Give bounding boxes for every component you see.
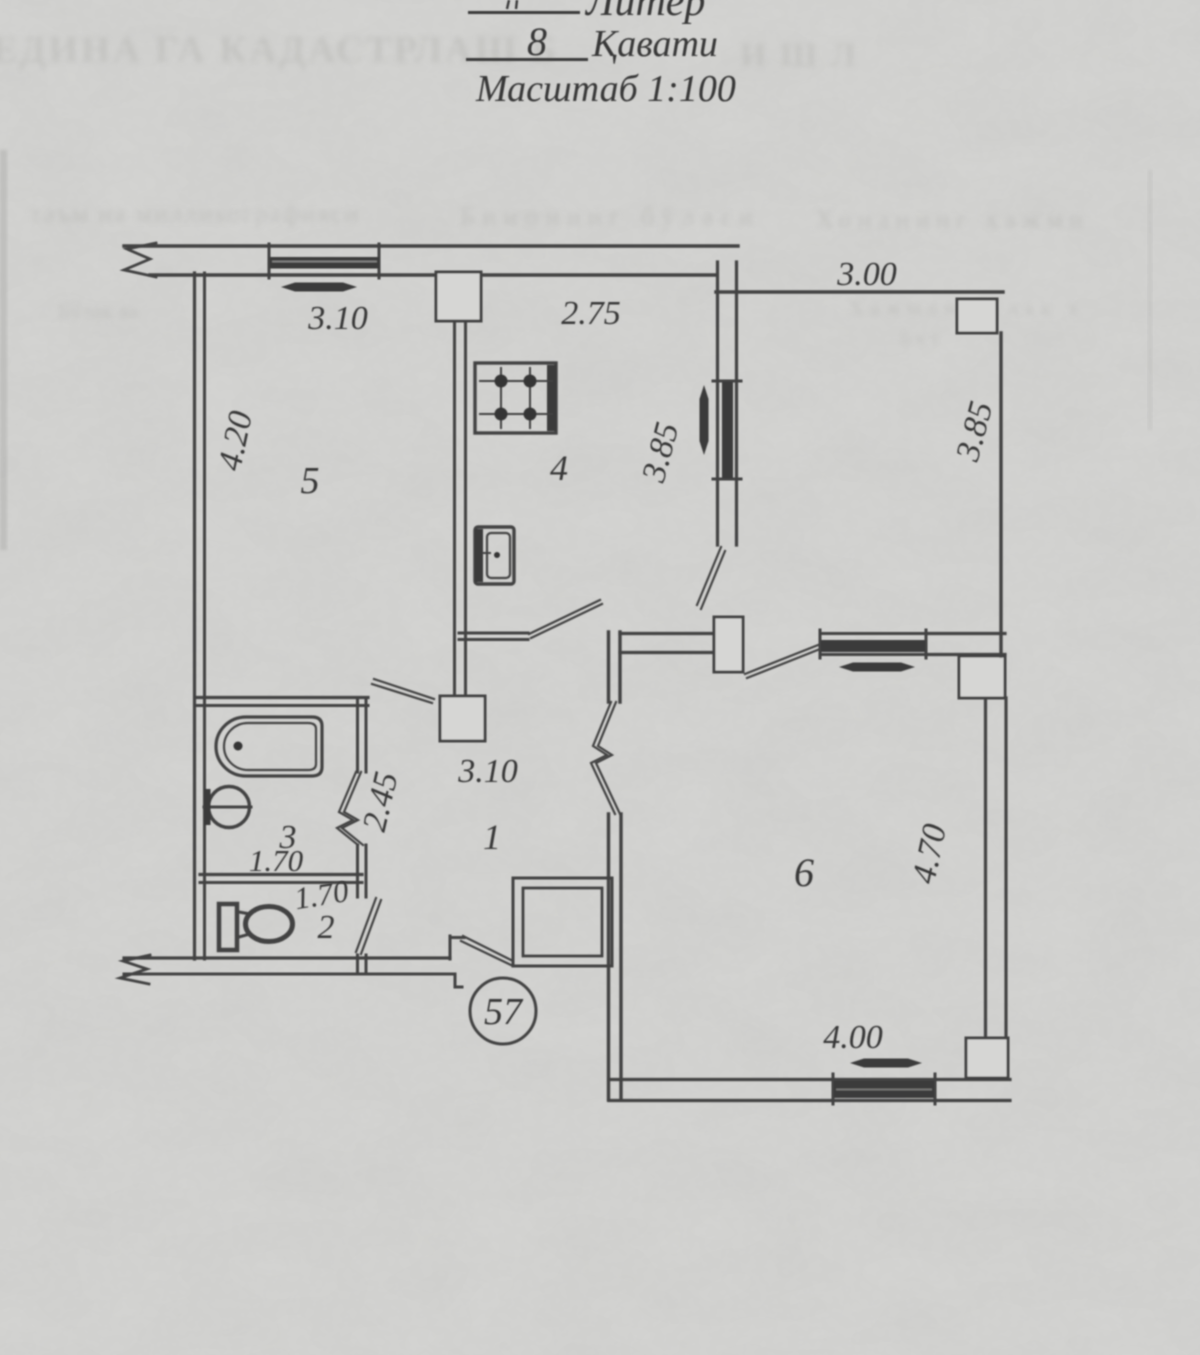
svg-text:1.70: 1.70 <box>249 843 304 878</box>
svg-text:5: 5 <box>301 460 320 502</box>
svg-text:1: 1 <box>483 817 501 857</box>
svg-text:2.75: 2.75 <box>561 295 621 332</box>
svg-text:таъм на милликографияси: таъм на милликографияси <box>30 199 360 228</box>
svg-text:Масштаб 1:100: Масштаб 1:100 <box>475 68 736 110</box>
svg-text:2: 2 <box>318 909 335 946</box>
svg-text:Қавати: Қавати <box>591 23 718 65</box>
svg-text:Литер: Литер <box>584 0 705 25</box>
svg-text:4.00: 4.00 <box>823 1019 883 1056</box>
svg-text:3.00: 3.00 <box>836 256 897 293</box>
svg-text:ИШЛ: ИШЛ <box>740 37 860 74</box>
svg-text:б х т: б х т <box>900 328 939 350</box>
svg-text:3.10: 3.10 <box>457 753 518 790</box>
svg-text:8: 8 <box>527 19 547 64</box>
svg-text:3.10: 3.10 <box>307 300 368 337</box>
svg-text:6: 6 <box>794 850 814 895</box>
svg-text:Бўлак ва: Бўлак ва <box>58 298 139 323</box>
svg-text:57: 57 <box>484 991 524 1033</box>
svg-text:ЕДИНА ГА КАДАСТРЛАШ Б: ЕДИНА ГА КАДАСТРЛАШ Б <box>0 29 562 71</box>
svg-text:4: 4 <box>550 448 568 488</box>
